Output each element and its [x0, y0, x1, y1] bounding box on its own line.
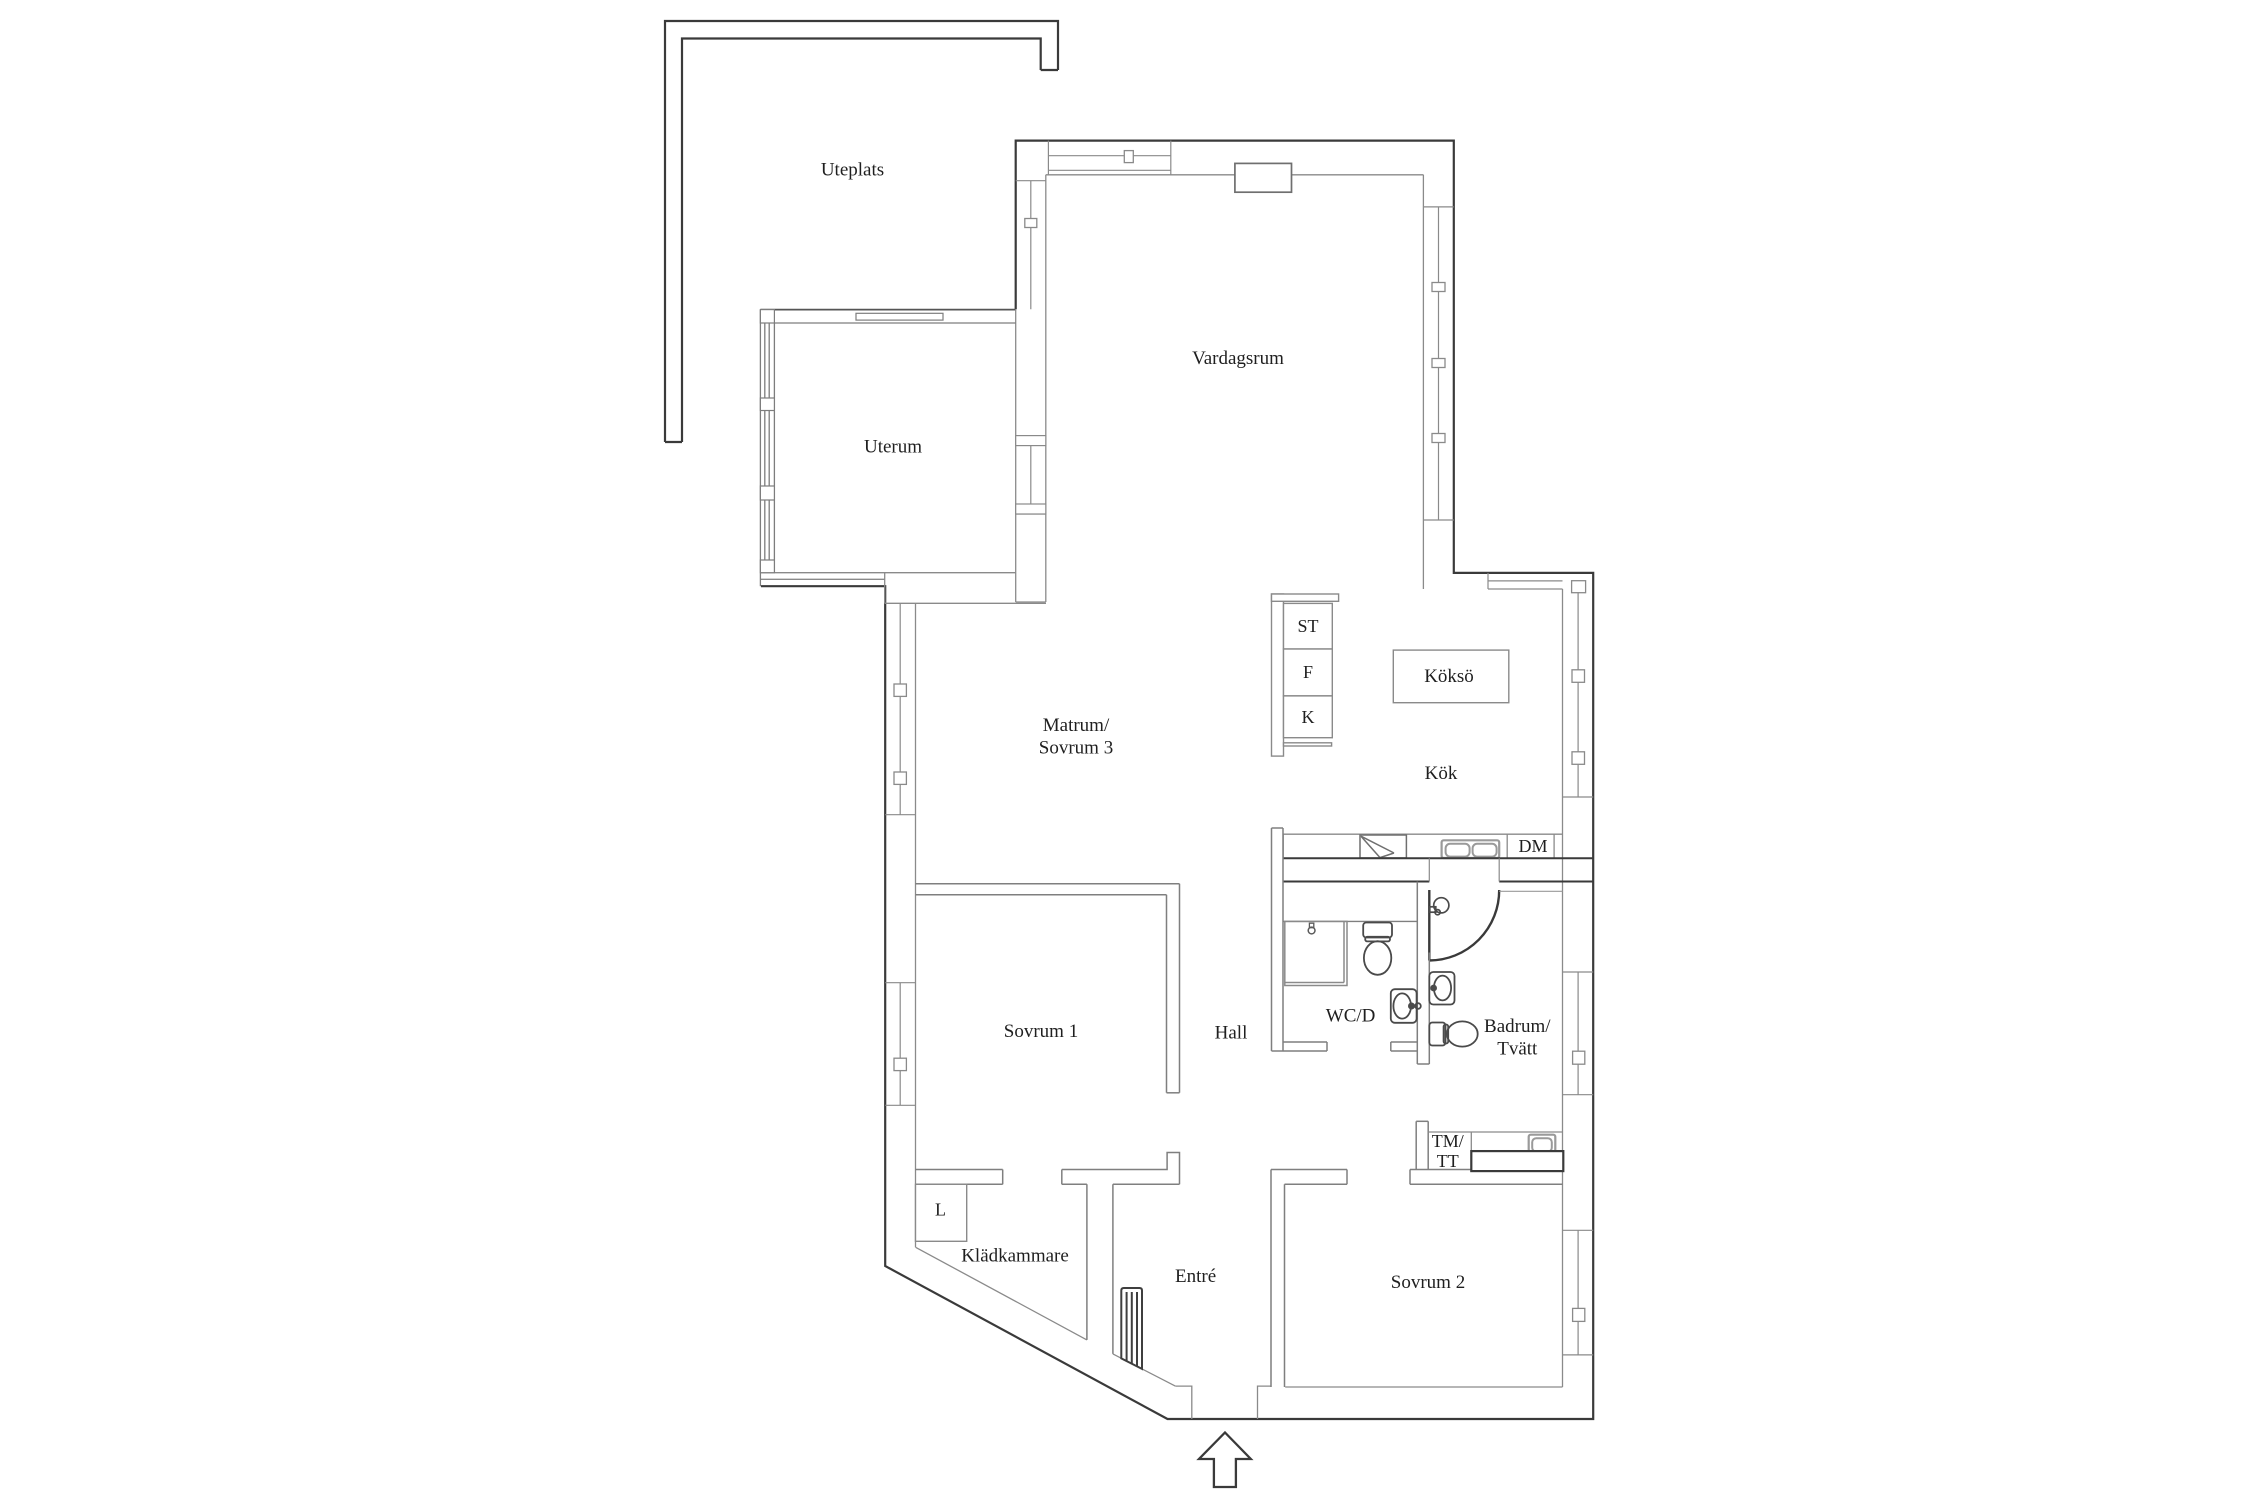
svg-text:Entré: Entré	[1175, 1266, 1216, 1287]
svg-text:Uterum: Uterum	[864, 437, 922, 458]
svg-text:Sovrum 2: Sovrum 2	[1391, 1272, 1465, 1293]
svg-text:Klädkammare: Klädkammare	[961, 1246, 1069, 1267]
svg-text:F: F	[1303, 662, 1313, 682]
svg-text:Vardagsrum: Vardagsrum	[1192, 348, 1284, 369]
svg-text:Badrum/: Badrum/	[1484, 1016, 1551, 1037]
svg-text:DM: DM	[1518, 836, 1547, 856]
svg-text:ST: ST	[1297, 616, 1318, 636]
svg-text:WC/D: WC/D	[1326, 1006, 1376, 1027]
svg-text:L: L	[935, 1200, 946, 1220]
svg-text:TT: TT	[1437, 1151, 1459, 1171]
svg-text:Uteplats: Uteplats	[821, 160, 884, 181]
svg-text:Sovrum 1: Sovrum 1	[1004, 1021, 1078, 1042]
svg-text:K: K	[1302, 707, 1315, 727]
svg-text:Kök: Kök	[1425, 763, 1458, 784]
svg-text:Köksö: Köksö	[1424, 666, 1474, 687]
svg-text:Sovrum 3: Sovrum 3	[1039, 738, 1113, 759]
svg-text:Tvätt: Tvätt	[1497, 1039, 1538, 1060]
svg-text:Hall: Hall	[1215, 1023, 1248, 1044]
svg-text:TM/: TM/	[1432, 1131, 1464, 1151]
svg-text:Matrum/: Matrum/	[1043, 715, 1110, 736]
